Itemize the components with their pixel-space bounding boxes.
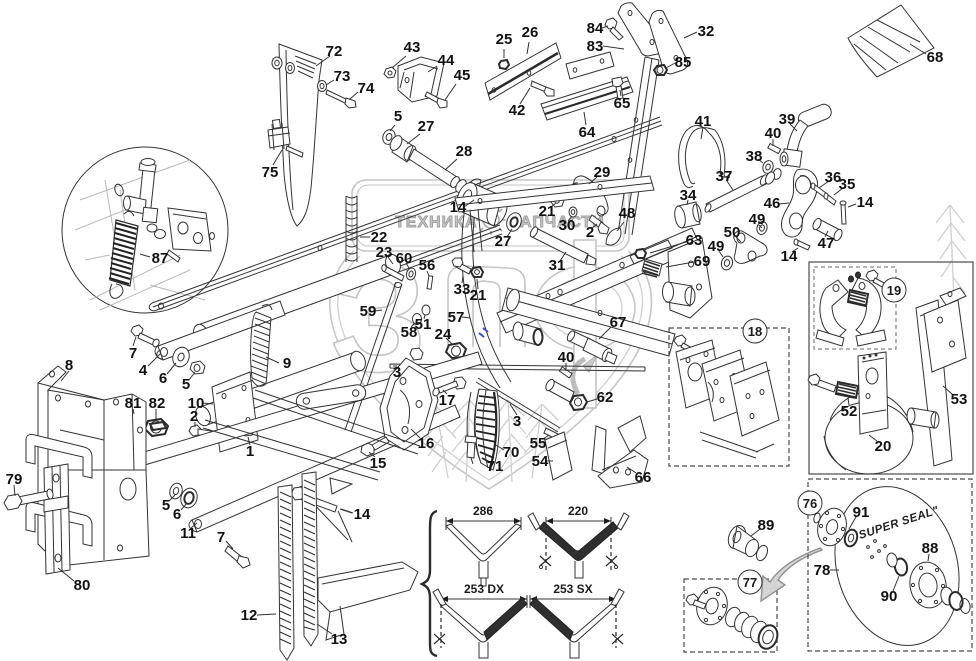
svg-text:57: 57 [448,309,465,326]
svg-text:58: 58 [401,324,418,341]
svg-text:5: 5 [394,108,402,125]
svg-text:19: 19 [887,283,901,298]
svg-text:45: 45 [454,67,471,84]
svg-text:253 SX: 253 SX [553,582,592,596]
svg-text:24: 24 [435,326,452,343]
svg-text:25: 25 [496,31,513,48]
svg-text:40: 40 [765,125,782,142]
svg-text:5: 5 [182,376,190,393]
svg-text:29: 29 [594,164,611,181]
svg-text:5: 5 [162,497,170,514]
svg-text:14: 14 [857,194,874,211]
svg-text:56: 56 [419,257,436,274]
svg-text:85: 85 [675,54,692,71]
svg-text:60: 60 [396,250,413,267]
svg-text:44: 44 [438,52,455,69]
svg-text:66: 66 [635,469,652,486]
svg-text:42: 42 [509,102,526,119]
svg-text:6: 6 [173,506,181,523]
svg-text:9: 9 [283,355,291,372]
svg-text:67: 67 [610,314,627,331]
svg-text:79: 79 [6,471,23,488]
svg-text:27: 27 [418,118,435,135]
svg-text:90: 90 [881,588,898,605]
svg-text:32: 32 [698,23,715,40]
svg-text:55: 55 [530,435,547,452]
svg-text:54: 54 [532,453,549,470]
svg-text:91: 91 [853,504,870,521]
svg-text:89: 89 [758,517,775,534]
svg-text:40: 40 [558,349,575,366]
svg-text:253 DX: 253 DX [464,582,504,596]
svg-text:31: 31 [549,257,566,274]
svg-text:76: 76 [803,496,817,511]
svg-text:49: 49 [749,211,766,228]
svg-text:8: 8 [65,357,73,374]
svg-text:2: 2 [190,408,198,425]
svg-text:1: 1 [246,443,254,460]
svg-text:62: 62 [597,389,614,406]
svg-text:11: 11 [180,525,196,542]
svg-text:75: 75 [262,164,279,181]
svg-text:14: 14 [450,199,467,216]
svg-text:2: 2 [586,224,594,241]
svg-text:15: 15 [370,455,387,472]
svg-text:82: 82 [149,395,166,412]
svg-text:21: 21 [470,287,487,304]
svg-text:70: 70 [503,444,520,461]
svg-text:26: 26 [522,24,539,41]
svg-text:14: 14 [354,506,371,523]
svg-text:3: 3 [393,364,401,381]
svg-text:69: 69 [694,253,711,270]
svg-text:33: 33 [454,281,471,298]
svg-text:73: 73 [334,68,351,85]
svg-text:63: 63 [686,232,703,249]
svg-text:ТЕХНИКА: ТЕХНИКА [395,214,478,231]
svg-text:71: 71 [487,458,504,475]
svg-text:65: 65 [614,95,631,112]
svg-text:220: 220 [568,504,588,518]
svg-text:27: 27 [495,233,512,250]
svg-text:16: 16 [418,435,435,452]
svg-text:13: 13 [331,631,348,648]
svg-text:7: 7 [129,345,137,362]
svg-text:30: 30 [559,217,576,234]
svg-text:12: 12 [241,607,258,624]
svg-text:48: 48 [619,205,636,222]
svg-text:37: 37 [716,168,733,185]
svg-text:78: 78 [814,562,831,579]
svg-text:52: 52 [841,403,858,420]
svg-text:28: 28 [456,143,473,160]
svg-text:34: 34 [680,187,697,204]
svg-text:80: 80 [74,577,91,594]
svg-text:6: 6 [159,370,167,387]
svg-text:17: 17 [439,392,456,409]
svg-text:88: 88 [922,540,939,557]
svg-text:7: 7 [217,529,225,546]
svg-text:68: 68 [927,49,944,66]
svg-text:38: 38 [746,148,763,165]
svg-text:47: 47 [818,235,835,252]
svg-text:46: 46 [764,195,781,212]
svg-text:77: 77 [743,575,757,590]
svg-text:50: 50 [724,224,741,241]
svg-text:64: 64 [579,124,596,141]
svg-text:3: 3 [513,413,521,430]
svg-text:4: 4 [139,362,148,379]
svg-text:286: 286 [473,504,493,518]
svg-text:87: 87 [152,250,169,267]
svg-text:21: 21 [539,203,556,220]
svg-text:53: 53 [951,391,968,408]
svg-text:41: 41 [695,113,712,130]
svg-text:74: 74 [358,80,375,97]
svg-text:84: 84 [587,20,604,37]
svg-text:35: 35 [839,176,856,193]
svg-text:83: 83 [587,38,604,55]
svg-text:43: 43 [404,39,421,56]
svg-text:72: 72 [326,43,343,60]
svg-text:20: 20 [875,438,892,455]
svg-text:23: 23 [376,244,393,261]
svg-text:14: 14 [781,248,798,265]
svg-text:59: 59 [360,303,377,320]
svg-text:81: 81 [125,395,142,412]
svg-text:18: 18 [748,324,762,339]
